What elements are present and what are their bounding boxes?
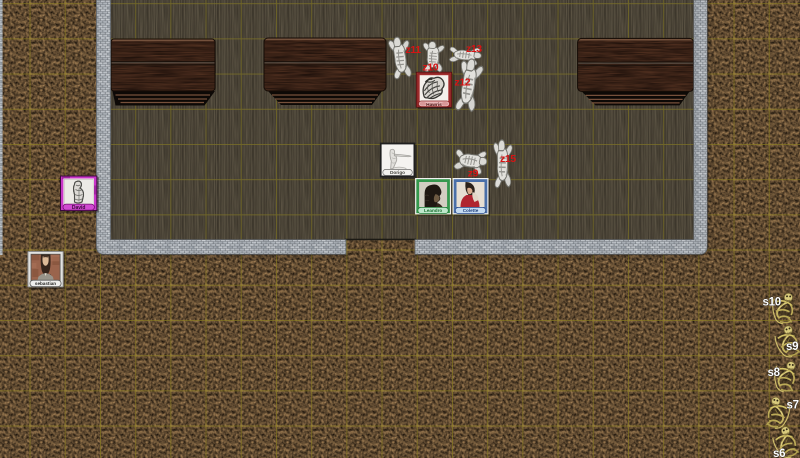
svg-text:Leandro: Leandro (424, 208, 442, 213)
svg-text:s10: s10 (763, 297, 781, 309)
svg-text:z13: z13 (466, 43, 482, 55)
svg-text:David: David (72, 205, 86, 211)
svg-text:z9: z9 (468, 168, 479, 180)
svg-text:Colette: Colette (463, 208, 479, 213)
svg-text:Hawris: Hawris (426, 102, 442, 108)
svg-text:z15: z15 (500, 153, 516, 165)
svg-text:s8: s8 (768, 367, 781, 379)
svg-text:s6: s6 (773, 448, 785, 458)
svg-text:s7: s7 (787, 400, 799, 412)
svg-text:sebastian: sebastian (35, 281, 56, 286)
svg-text:z11: z11 (406, 44, 422, 56)
svg-text:Dorigo: Dorigo (390, 170, 405, 175)
svg-text:z10: z10 (423, 61, 439, 73)
svg-text:z12: z12 (455, 76, 471, 88)
svg-text:s9: s9 (786, 341, 798, 353)
